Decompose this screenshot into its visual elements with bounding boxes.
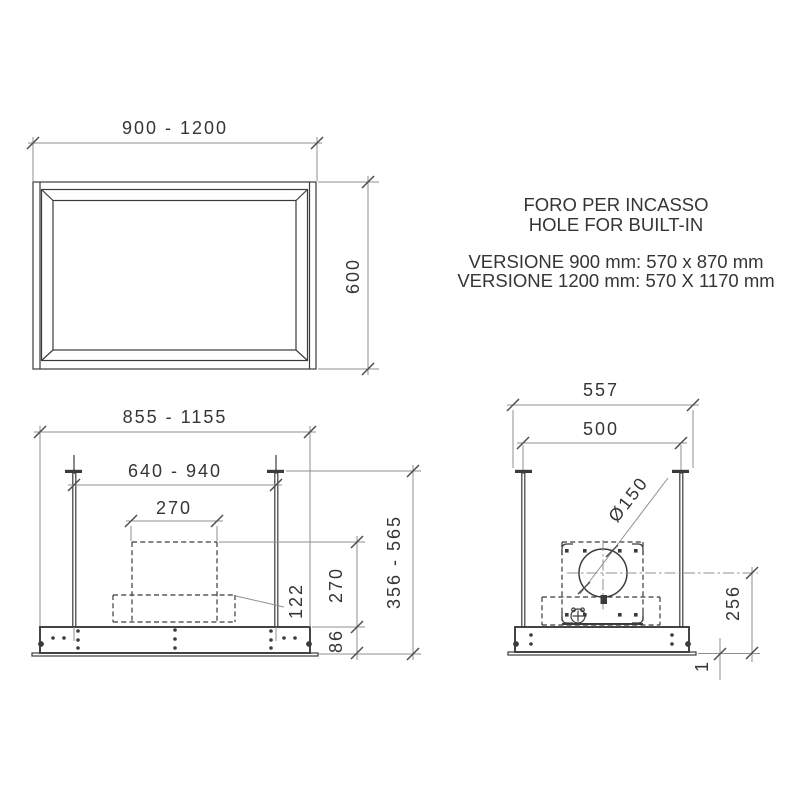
- header-version-900: VERSIONE 900 mm: 570 x 870 mm: [468, 251, 763, 272]
- front-lower-section-dimension: 122: [236, 583, 306, 619]
- duct-mounting-dashed-outline: [542, 542, 660, 625]
- outlet-diameter-label: Ø150: [604, 473, 652, 526]
- header-version-1200: VERSIONE 1200 mm: 570 X 1170 mm: [457, 270, 774, 291]
- plan-depth-dimension: 600: [318, 176, 379, 375]
- header-title-italian: FORO PER INCASSO: [523, 194, 708, 215]
- flange-thickness-dimension: 1: [692, 638, 726, 680]
- outlet-center-height-dimension: 256: [698, 567, 760, 662]
- front-body-height-label: 86: [326, 629, 346, 653]
- header-text-block: FORO PER INCASSO HOLE FOR BUILT-IN VERSI…: [457, 194, 774, 291]
- plan-width-label: 900 - 1200: [122, 118, 228, 138]
- front-chimney-width-dimension: 270: [125, 498, 223, 541]
- hanger-rod-right-front: [267, 455, 284, 641]
- plan-depth-label: 600: [343, 258, 363, 294]
- hood-body-side: [508, 627, 696, 655]
- front-body-height-dimension: 86: [319, 629, 421, 659]
- built-in-frame: [33, 182, 316, 369]
- front-hanger-spacing-label: 640 - 940: [128, 461, 222, 481]
- side-hanger-spacing-dimension: 500: [517, 419, 687, 449]
- front-chimney-height-label: 270: [326, 567, 346, 603]
- outlet-diameter-dimension: Ø150: [578, 473, 668, 594]
- front-view: 855 - 1155 640 - 940 270 122 270: [32, 407, 421, 660]
- front-overall-width-label: 855 - 1155: [123, 407, 228, 427]
- cable-gland-symbol: [571, 608, 585, 623]
- hanger-rod-left-front: [65, 455, 82, 641]
- hanger-rod-right-side: [672, 445, 689, 627]
- side-view: 557 500 Ø150 256 1: [507, 380, 760, 680]
- hood-dimension-drawing: 900 - 1200 600 FORO PER INCASSO HOLE FOR…: [0, 0, 800, 800]
- technical-drawing-page: 900 - 1200 600 FORO PER INCASSO HOLE FOR…: [0, 0, 800, 800]
- hanger-rod-left-side: [515, 445, 532, 627]
- front-lower-section-label: 122: [286, 583, 306, 619]
- side-depth-label: 557: [583, 380, 619, 400]
- plan-width-dimension: 900 - 1200: [27, 118, 323, 181]
- front-chimney-width-label: 270: [156, 498, 192, 518]
- chimney-dashed-outline-front: [113, 542, 235, 622]
- front-hanger-spacing-dimension: 640 - 940: [68, 461, 282, 491]
- side-hanger-spacing-label: 500: [583, 419, 619, 439]
- header-title-english: HOLE FOR BUILT-IN: [529, 214, 703, 235]
- flange-thickness-label: 1: [692, 660, 712, 672]
- front-overall-height-label: 356 - 565: [384, 515, 404, 609]
- outlet-center-height-label: 256: [723, 585, 743, 621]
- plan-view: 900 - 1200 600: [27, 118, 379, 375]
- hood-body-front: [32, 627, 318, 656]
